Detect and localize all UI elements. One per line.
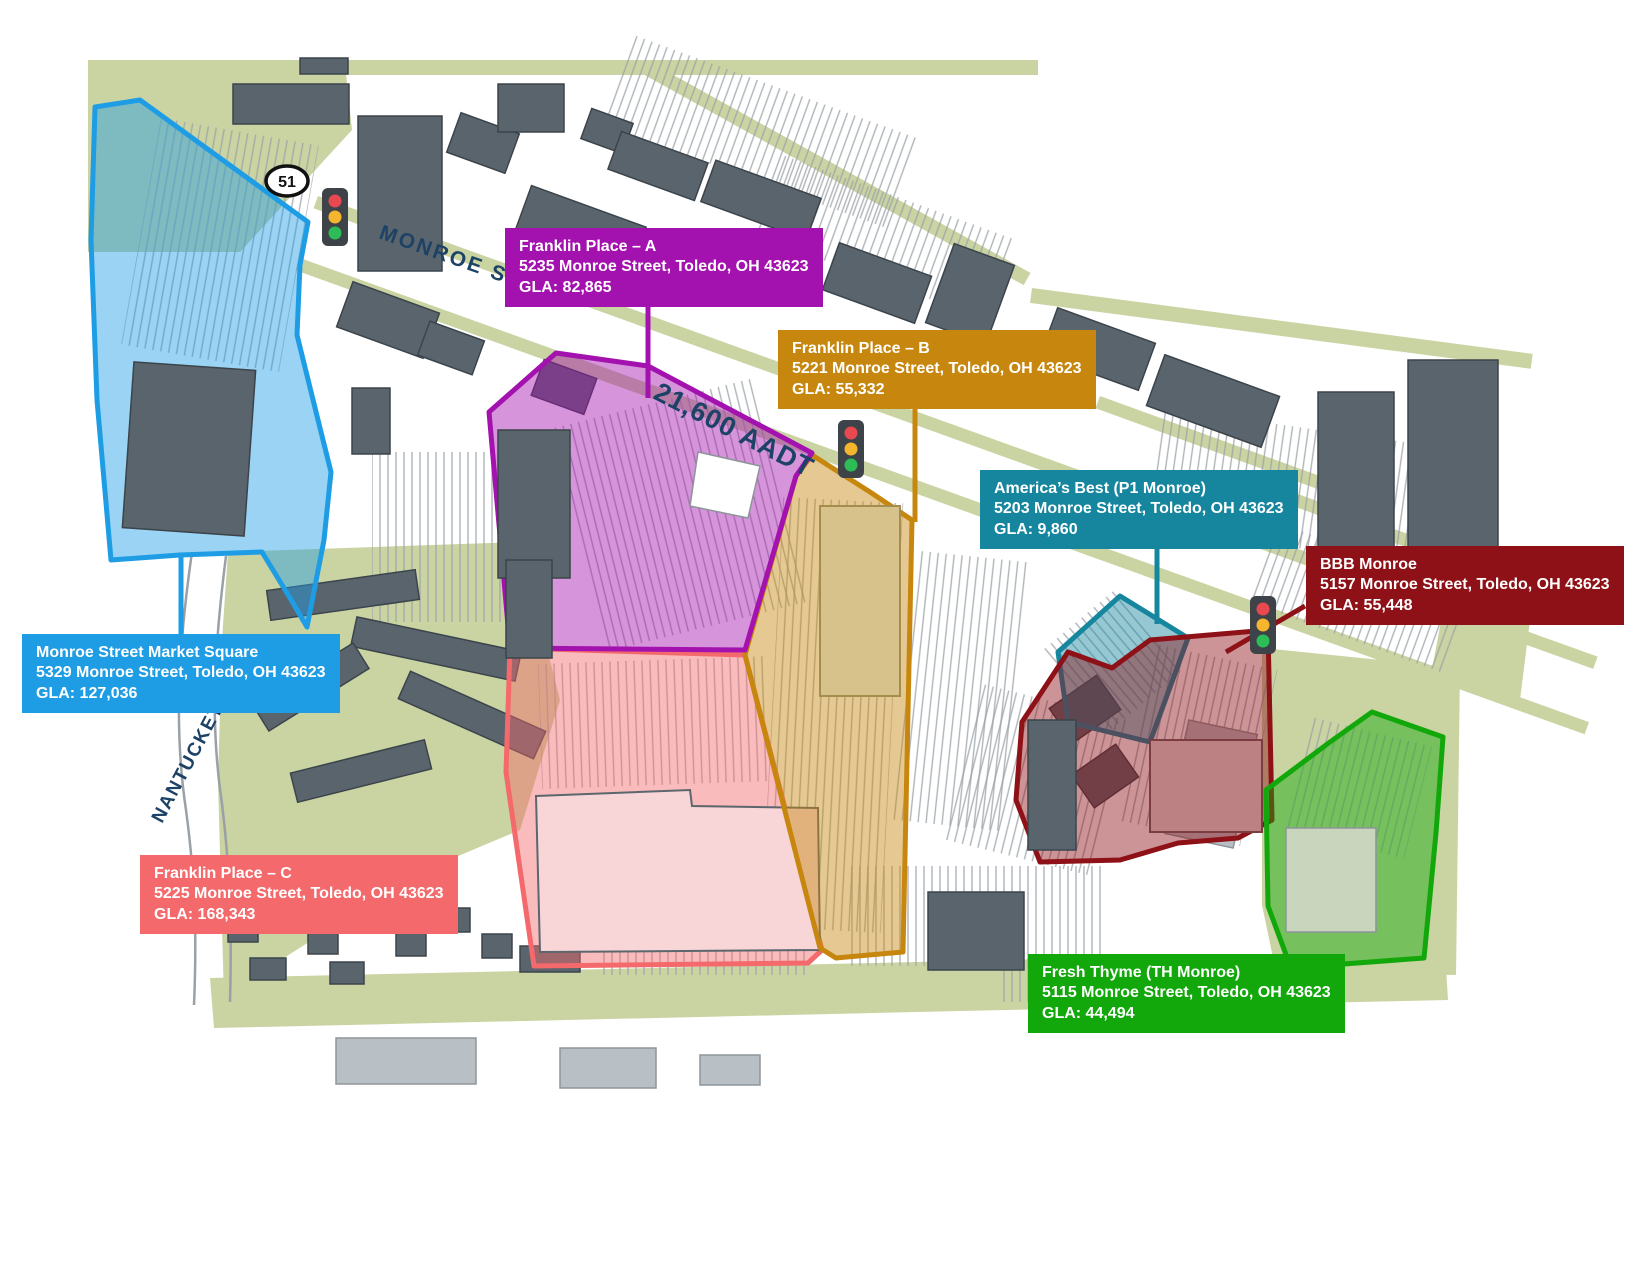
building [498, 430, 570, 578]
property-name: Monroe Street Market Square [36, 643, 326, 663]
property-name: Franklin Place – A [519, 237, 809, 257]
property-address: 5203 Monroe Street, Toledo, OH 43623 [994, 499, 1284, 519]
label-franklin-place-c[interactable]: Franklin Place – C 5225 Monroe Street, T… [140, 855, 458, 934]
traffic-light-icon [1250, 596, 1276, 654]
property-address: 5157 Monroe Street, Toledo, OH 43623 [1320, 575, 1610, 595]
label-monroe-street-market-square[interactable]: Monroe Street Market Square 5329 Monroe … [22, 634, 340, 713]
property-address: 5221 Monroe Street, Toledo, OH 43623 [792, 359, 1082, 379]
label-bbb-monroe[interactable]: BBB Monroe 5157 Monroe Street, Toledo, O… [1306, 546, 1624, 625]
property-name: America’s Best (P1 Monroe) [994, 479, 1284, 499]
label-franklin-place-a[interactable]: Franklin Place – A 5235 Monroe Street, T… [505, 228, 823, 307]
property-gla: GLA: 168,343 [154, 905, 444, 925]
label-fresh-thyme[interactable]: Fresh Thyme (TH Monroe) 5115 Monroe Stre… [1028, 954, 1345, 1033]
property-gla: GLA: 9,860 [994, 520, 1284, 540]
property-address: 5329 Monroe Street, Toledo, OH 43623 [36, 663, 326, 683]
property-gla: GLA: 55,332 [792, 380, 1082, 400]
traffic-light-icon [322, 188, 348, 246]
building [506, 560, 552, 658]
property-gla: GLA: 127,036 [36, 684, 326, 704]
building [1286, 828, 1376, 932]
route-number: 51 [278, 174, 296, 191]
property-name: Fresh Thyme (TH Monroe) [1042, 963, 1331, 983]
property-address: 5115 Monroe Street, Toledo, OH 43623 [1042, 983, 1331, 1003]
property-name: Franklin Place – C [154, 864, 444, 884]
property-gla: GLA: 55,448 [1320, 596, 1610, 616]
property-name: Franklin Place – B [792, 339, 1082, 359]
property-gla: GLA: 44,494 [1042, 1004, 1331, 1024]
property-name: BBB Monroe [1320, 555, 1610, 575]
label-franklin-place-b[interactable]: Franklin Place – B 5221 Monroe Street, T… [778, 330, 1096, 409]
property-address: 5235 Monroe Street, Toledo, OH 43623 [519, 257, 809, 277]
building [122, 362, 255, 536]
label-americas-best[interactable]: America’s Best (P1 Monroe) 5203 Monroe S… [980, 470, 1298, 549]
route-51-shield-icon: 51 [266, 166, 308, 196]
property-gla: GLA: 82,865 [519, 278, 809, 298]
traffic-light-icon [838, 420, 864, 478]
building [1028, 720, 1076, 850]
property-address: 5225 Monroe Street, Toledo, OH 43623 [154, 884, 444, 904]
building [536, 790, 820, 952]
site-plan-map: MONROE ST 21,600 AADT NANTUCKETT DR 51 M… [0, 0, 1650, 1275]
building [1150, 740, 1262, 832]
building [820, 506, 900, 696]
